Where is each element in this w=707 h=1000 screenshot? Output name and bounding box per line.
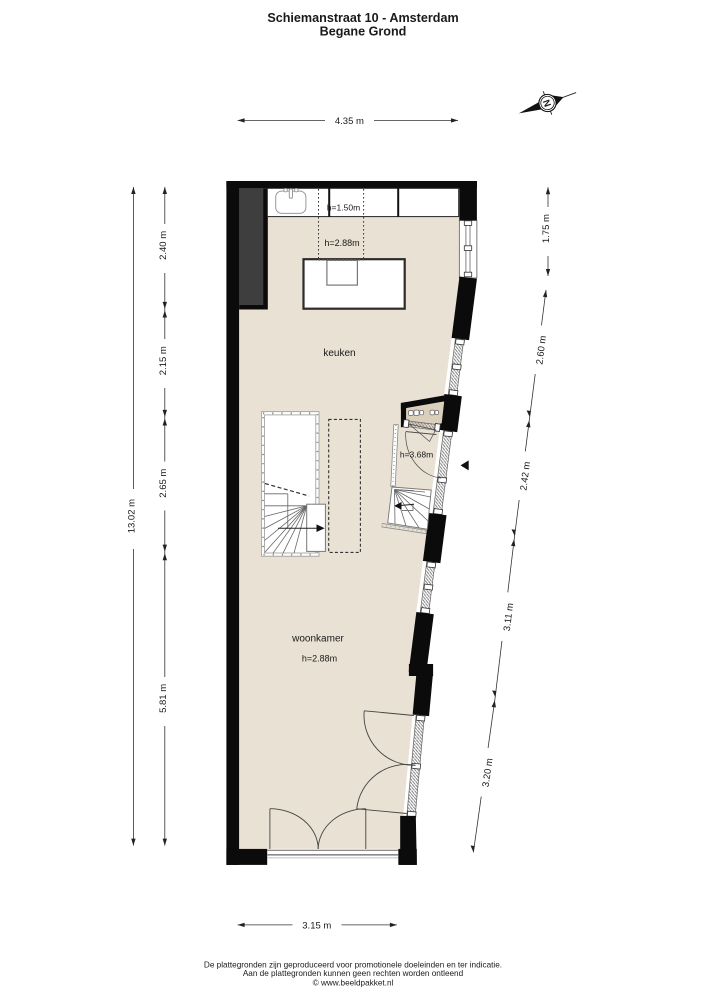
svg-text:3.15 m: 3.15 m — [302, 921, 331, 932]
svg-text:De plattegronden zijn geproduc: De plattegronden zijn geproduceerd voor … — [204, 960, 502, 969]
svg-text:keuken: keuken — [323, 348, 355, 359]
svg-text:h=3.68m: h=3.68m — [400, 450, 433, 460]
svg-text:h=2.88m: h=2.88m — [324, 238, 359, 248]
svg-text:Aan de plattegronden kunnen ge: Aan de plattegronden kunnen geen rechten… — [243, 969, 464, 978]
svg-text:Schiemanstraat 10 - Amsterdam: Schiemanstraat 10 - Amsterdam — [267, 11, 458, 25]
svg-text:woonkamer: woonkamer — [291, 634, 344, 645]
svg-text:4.35 m: 4.35 m — [335, 116, 364, 127]
svg-text:5.81 m: 5.81 m — [158, 684, 169, 713]
svg-text:2.40 m: 2.40 m — [158, 231, 169, 260]
svg-text:Begane Grond: Begane Grond — [320, 24, 407, 38]
svg-text:13.02 m: 13.02 m — [126, 499, 137, 533]
svg-text:h=1.50m: h=1.50m — [327, 203, 360, 213]
svg-text:1.75 m: 1.75 m — [541, 214, 552, 243]
svg-text:h=2.88m: h=2.88m — [302, 653, 337, 663]
svg-text:2.15 m: 2.15 m — [158, 346, 169, 375]
svg-text:2.65 m: 2.65 m — [158, 469, 169, 498]
svg-text:© www.beeldpakket.nl: © www.beeldpakket.nl — [313, 979, 394, 988]
